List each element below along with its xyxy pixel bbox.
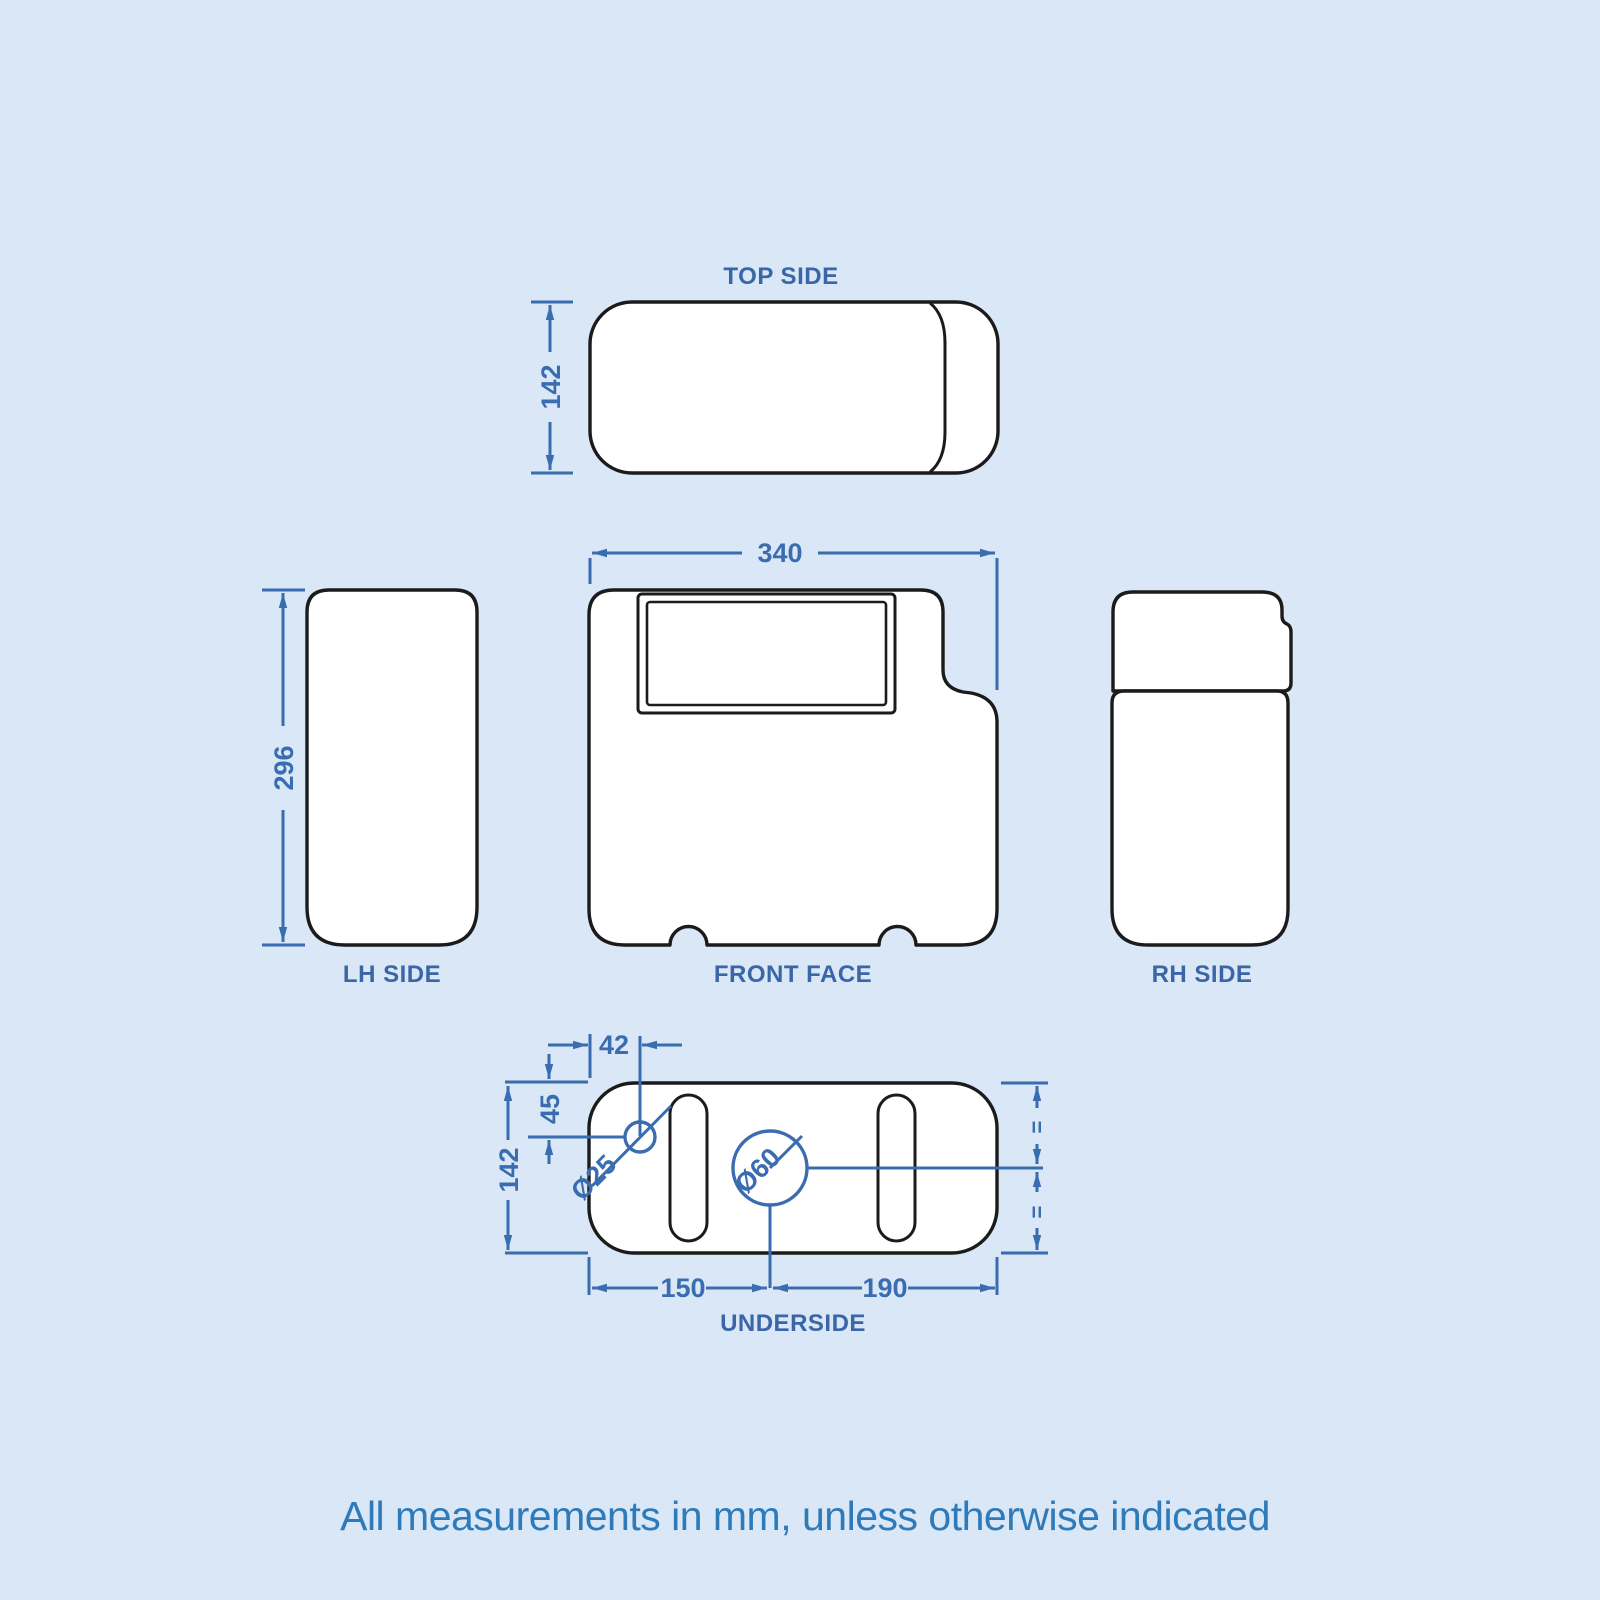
top-side-view: TOP SIDE 142 [531,263,998,473]
lh-side-height-dimension: 296 [262,590,305,945]
top-side-height-dimension: 142 [531,302,573,473]
equal-mark: = [1024,1206,1049,1219]
dim-value: 42 [599,1030,629,1060]
lh-side-view: 296 LH SIDE [262,590,477,988]
technical-drawing-canvas: TOP SIDE 142 296 LH SIDE [0,0,1600,1600]
measurement-note: All measurements in mm, unless otherwise… [340,1493,1270,1539]
dim-value: 150 [660,1273,705,1303]
rh-side-view: RH SIDE [1112,592,1291,988]
lh-side-outline [307,590,477,945]
drawing-page: TOP SIDE 142 296 LH SIDE [0,0,1600,1600]
equal-mark: = [1024,1121,1049,1134]
front-face-label: FRONT FACE [714,961,872,988]
top-side-label: TOP SIDE [723,263,838,290]
top-side-outline [590,302,998,473]
rh-side-cap-outline [1113,592,1291,691]
dim-value: 296 [269,745,299,790]
rh-side-body-outline [1112,691,1288,945]
front-face-outline [589,590,997,945]
underside-label: UNDERSIDE [720,1310,866,1337]
underside-view: Ø25 Ø60 42 45 142 [494,1030,1049,1337]
underside-150-190-dimensions: 150 190 [589,1257,997,1303]
dim-value: 340 [757,538,802,568]
dim-value: 142 [536,364,566,409]
dim-value: 45 [535,1094,565,1124]
front-face-view: 340 FRONT FACE [589,538,997,988]
rh-side-label: RH SIDE [1152,961,1253,988]
lh-side-label: LH SIDE [343,961,441,988]
dim-value: 190 [862,1273,907,1303]
dim-value: 142 [494,1147,524,1192]
